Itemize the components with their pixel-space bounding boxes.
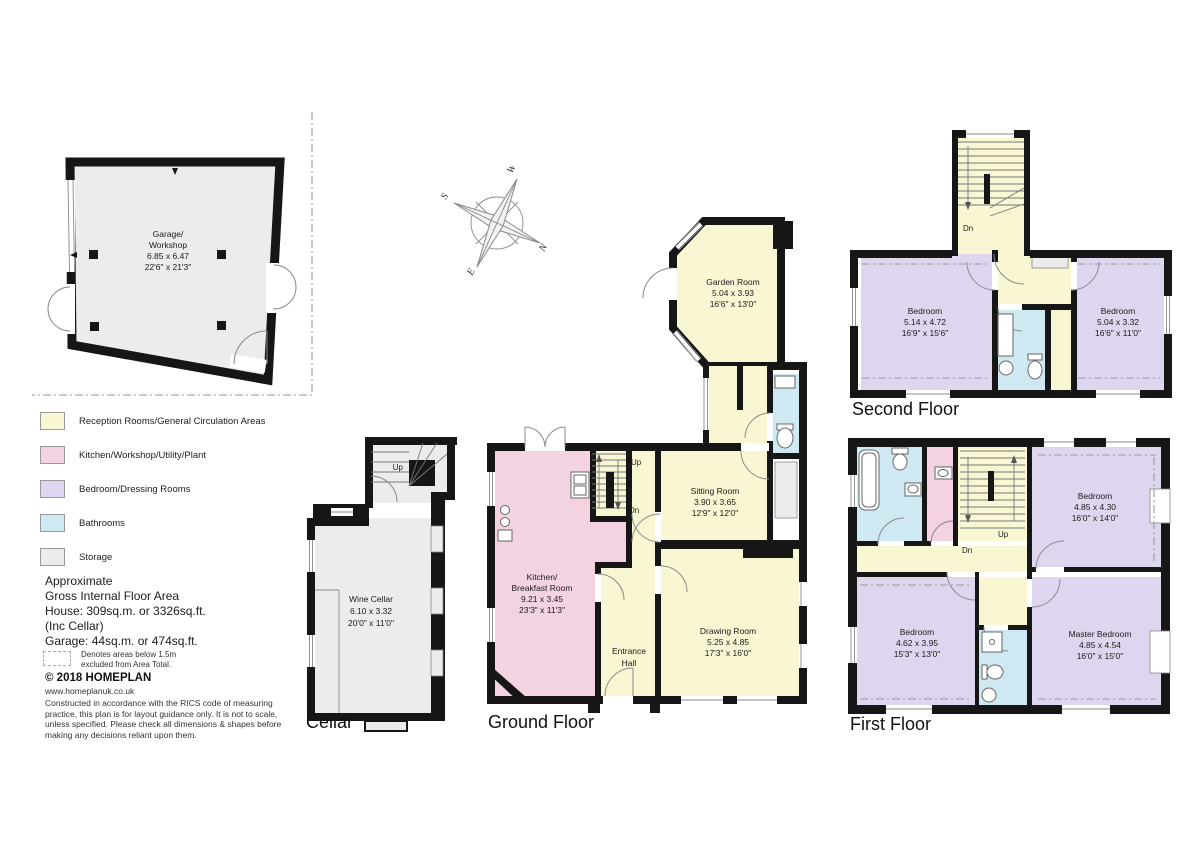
dashed-area-icon (43, 651, 71, 666)
cellar-plan: Up Wine Cellar 6.10 x 3.32 20'0" x 11'0" (305, 430, 465, 735)
room-imperial: 16'0" x 15'0" (1077, 651, 1124, 661)
room-name: Garden Room (706, 277, 759, 287)
room-imperial: 16'0" x 14'0" (1072, 513, 1119, 523)
legend-label: Storage (79, 552, 112, 563)
bathroom-swatch (40, 514, 65, 532)
room-name: Bedroom (900, 627, 935, 637)
exclusion-note: Denotes areas below 1.5m excluded from A… (43, 650, 176, 670)
legend-label: Bathrooms (79, 518, 125, 529)
room-metric: 9.21 x 3.45 (521, 594, 563, 604)
room-imperial: 23'3" x 11'3" (519, 605, 565, 615)
copyright-brand: © 2018 HOMEPLAN (45, 672, 325, 684)
ground-floor-plan: Up Dn Garden Room 5.04 x 3.93 16'6" x 13… (485, 210, 815, 720)
legend-label: Reception Rooms/General Circulation Area… (79, 416, 265, 427)
legend-item-storage: Storage (40, 548, 330, 566)
copyright-disclaimer: Constructed in accordance with the RICS … (45, 698, 325, 740)
floorplan-sheet: Garage/ Workshop 6.85 x 6.47 22'6" x 21'… (0, 0, 1200, 848)
room-name: Kitchen/ (527, 572, 558, 582)
ground-up-label: Up (631, 458, 642, 467)
ground-dn-label: Dn (629, 506, 639, 515)
garage-metric: 6.85 x 6.47 (147, 251, 189, 261)
note-line-1: Denotes areas below 1.5m (81, 650, 176, 659)
legend-label: Kitchen/Workshop/Utility/Plant (79, 450, 206, 461)
garden-room-label: Garden Room 5.04 x 3.93 16'6" x 13'0" (706, 277, 759, 309)
second-bedroom-w-label: Bedroom 5.14 x 4.72 16'9" x 15'6" (902, 306, 949, 338)
second-floor-plan: Dn Bedroom 5.14 x 4.72 16'9" x 15'6" Bed… (848, 128, 1183, 406)
disclaimer-line: practice, this plan is for layout guidan… (45, 709, 277, 719)
legend-item-reception: Reception Rooms/General Circulation Area… (40, 412, 330, 430)
room-name: Entrance (612, 646, 646, 656)
room-name: Breakfast Room (512, 583, 573, 593)
wine-cellar-name: Wine Cellar (349, 594, 393, 604)
wine-cellar-metric: 6.10 x 3.32 (350, 606, 392, 616)
copyright-website: www.homeplanuk.co.uk (45, 686, 325, 696)
room-name: Bedroom (1078, 491, 1113, 501)
legend-item-bathrooms: Bathrooms (40, 514, 330, 532)
room-name: Sitting Room (691, 486, 740, 496)
ground-floor-label: Ground Floor (488, 712, 594, 733)
room-metric: 4.85 x 4.54 (1079, 640, 1121, 650)
reception-swatch (40, 412, 65, 430)
area-line: Garage: 44sq.m. or 474sq.ft. (45, 634, 206, 649)
room-metric: 4.85 x 4.30 (1074, 502, 1116, 512)
room-metric: 5.04 x 3.93 (712, 288, 754, 298)
note-line-2: excluded from Area Total. (81, 660, 171, 669)
first-bedroom-sw-label: Bedroom 4.62 x 3.95 15'3" x 13'0" (894, 627, 941, 659)
room-imperial: 17'3" x 16'0" (705, 648, 752, 658)
room-name: Bedroom (1101, 306, 1136, 316)
exclusion-note-text: Denotes areas below 1.5m excluded from A… (81, 650, 176, 670)
wine-cellar-label: Wine Cellar 6.10 x 3.32 20'0" x 11'0" (348, 594, 394, 628)
room-metric: 5.04 x 3.32 (1097, 317, 1139, 327)
wine-cellar-imperial: 20'0" x 11'0" (348, 618, 394, 628)
first-floor-plan: Up Dn Bedroom 4.85 x 4.30 16'0" x 14'0" … (848, 433, 1183, 718)
sitting-room-label: Sitting Room 3.90 x 3.65 12'9" x 12'0" (691, 486, 740, 518)
legend-item-bedroom: Bedroom/Dressing Rooms (40, 480, 330, 498)
room-name: Master Bedroom (1069, 629, 1132, 639)
room-metric: 5.25 x 4.85 (707, 637, 749, 647)
garage-imperial: 22'6" x 21'3" (145, 262, 192, 272)
bedroom-swatch (40, 480, 65, 498)
area-line: Gross Internal Floor Area (45, 589, 206, 604)
garage-plan: Garage/ Workshop 6.85 x 6.47 22'6" x 21'… (30, 100, 330, 412)
disclaimer-line: Constructed in accordance with the RICS … (45, 698, 273, 708)
area-line: (Inc Cellar) (45, 619, 206, 634)
second-floor-label: Second Floor (852, 399, 959, 420)
room-name: Hall (622, 658, 637, 668)
room-imperial: 16'6" x 11'0" (1095, 328, 1141, 338)
legend: Reception Rooms/General Circulation Area… (40, 412, 330, 582)
copyright-block: © 2018 HOMEPLAN www.homeplanuk.co.uk Con… (45, 672, 325, 740)
room-name: Drawing Room (700, 626, 756, 636)
cellar-stairs-up-label: Up (393, 463, 404, 472)
disclaimer-line: making any decisions reliant upon them. (45, 730, 197, 740)
compass-s: S (440, 192, 451, 202)
area-summary: Approximate Gross Internal Floor Area Ho… (45, 574, 206, 649)
legend-label: Bedroom/Dressing Rooms (79, 484, 190, 495)
cellar-structure (307, 437, 457, 731)
area-line: House: 309sq.m. or 3326sq.ft. (45, 604, 206, 619)
room-imperial: 12'9" x 12'0" (692, 508, 739, 518)
disclaimer-line: unless specified. Please check all dimen… (45, 719, 281, 729)
room-metric: 5.14 x 4.72 (904, 317, 946, 327)
kitchen-swatch (40, 446, 65, 464)
second-dn-label: Dn (963, 224, 973, 233)
room-metric: 4.62 x 3.95 (896, 638, 938, 648)
second-bedroom-e-label: Bedroom 5.04 x 3.32 16'6" x 11'0" (1095, 306, 1141, 338)
drawing-room-label: Drawing Room 5.25 x 4.85 17'3" x 16'0" (700, 626, 756, 658)
first-bedroom-ne-label: Bedroom 4.85 x 4.30 16'0" x 14'0" (1072, 491, 1119, 523)
cellar-floor-label: Cellar (306, 712, 353, 733)
storage-swatch (40, 548, 65, 566)
room-imperial: 16'6" x 13'0" (710, 299, 757, 309)
area-line: Approximate (45, 574, 206, 589)
first-dn-label: Dn (962, 546, 972, 555)
first-up-label: Up (998, 530, 1009, 539)
first-utility-fixtures (935, 467, 952, 479)
compass-w: W (505, 166, 520, 176)
compass-e: E (465, 267, 478, 279)
first-floor-label: First Floor (850, 714, 931, 735)
garage-name-2: Workshop (149, 240, 187, 250)
garage-name-1: Garage/ (153, 229, 184, 239)
room-metric: 3.90 x 3.65 (694, 497, 736, 507)
room-imperial: 16'9" x 15'6" (902, 328, 949, 338)
room-name: Bedroom (908, 306, 943, 316)
legend-item-kitchen: Kitchen/Workshop/Utility/Plant (40, 446, 330, 464)
room-imperial: 15'3" x 13'0" (894, 649, 941, 659)
